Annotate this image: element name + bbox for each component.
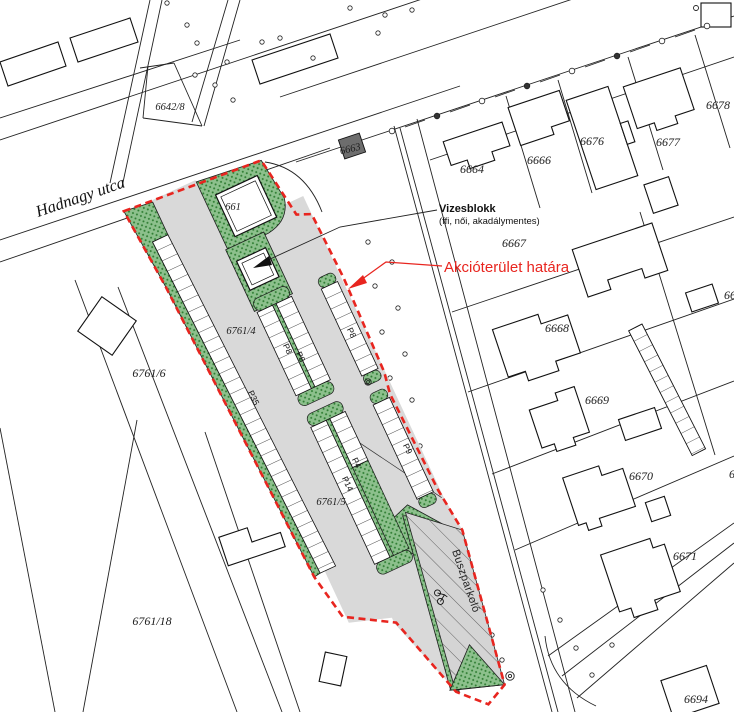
parcel-label-6667: 6667 bbox=[502, 236, 527, 250]
parcel-label-6678-clipped: 6678 bbox=[706, 98, 730, 112]
action-area-leader bbox=[348, 262, 442, 289]
parcel-label-6676: 6676 bbox=[580, 134, 604, 148]
parcel-label-6761-18: 6761/18 bbox=[132, 614, 171, 628]
parcel-label-6666: 6666 bbox=[527, 153, 551, 167]
parcel-label-6669: 6669 bbox=[585, 393, 609, 407]
parcel-label-6671: 6671 bbox=[673, 549, 697, 563]
parcel-label-6668: 6668 bbox=[545, 321, 569, 335]
parcel-label-6642-8: 6642/8 bbox=[155, 102, 185, 113]
vizesblokk-title: Vizesblokk bbox=[439, 203, 497, 215]
parcel-label-fragment-66: 66 bbox=[724, 288, 734, 302]
parcel-label-6677: 6677 bbox=[656, 135, 681, 149]
vizesblokk-subtitle: (ffi, női, akadálymentes) bbox=[439, 216, 540, 227]
parcel-label-6761-4: 6761/4 bbox=[226, 326, 256, 337]
parcel-label-6761-6: 6761/6 bbox=[132, 366, 165, 380]
street-label-hadnagy: Hadnagy utca bbox=[32, 173, 127, 222]
parcel-label-fragment-6: 6 bbox=[729, 467, 734, 481]
site-plan-map: Hadnagy utca 6642/8 661 6663 6761/4 6761… bbox=[0, 0, 734, 712]
action-area-label: Akcióterület határa bbox=[444, 259, 570, 276]
parcel-label-6670: 6670 bbox=[629, 469, 653, 483]
parcel-label-6664: 6664 bbox=[460, 162, 484, 176]
parcel-label-6761-5: 6761/5 bbox=[316, 497, 345, 508]
parcel-label-6694: 6694 bbox=[684, 692, 708, 706]
parcel-label-661: 661 bbox=[225, 202, 241, 213]
